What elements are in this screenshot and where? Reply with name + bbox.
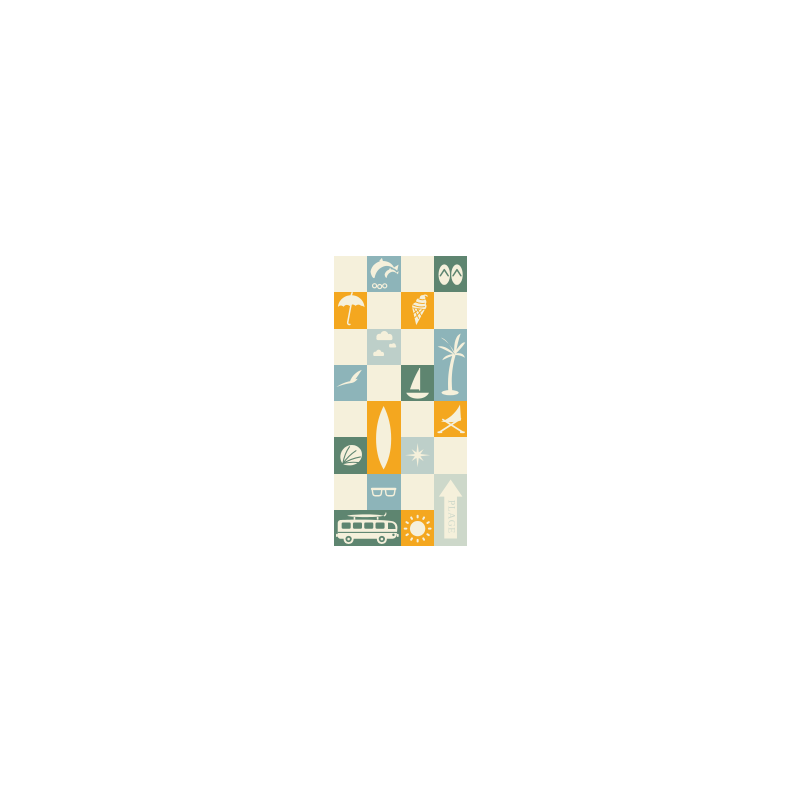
tile-palm <box>434 329 467 402</box>
starburst-icon <box>401 437 434 473</box>
beach-umbrella-icon <box>334 292 367 328</box>
tile-umbrella <box>334 292 367 328</box>
tile-empty <box>367 292 400 328</box>
tile-empty <box>367 365 400 401</box>
tile-empty <box>334 256 367 292</box>
tile-seagull <box>334 365 367 401</box>
sunglasses-icon <box>367 474 400 510</box>
tile-empty <box>334 474 367 510</box>
tile-flipflops <box>434 256 467 292</box>
tile-empty <box>401 256 434 292</box>
deckchair-icon <box>434 401 467 437</box>
shell-icon <box>334 437 367 473</box>
tile-empty <box>401 329 434 365</box>
flipflops-icon <box>434 256 467 292</box>
tile-shell <box>334 437 367 473</box>
tile-clouds <box>367 329 400 365</box>
camper-van-icon <box>334 510 401 546</box>
dolphins-icon <box>367 256 400 292</box>
tile-empty <box>401 401 434 437</box>
sun-icon <box>401 510 434 546</box>
tile-sun <box>401 510 434 546</box>
tile-empty <box>334 329 367 365</box>
surfboard-icon <box>367 401 400 474</box>
tile-surfboard <box>367 401 400 474</box>
tile-empty <box>434 437 467 473</box>
tile-deckchair <box>434 401 467 437</box>
tile-empty <box>434 292 467 328</box>
clouds-icon <box>367 329 400 365</box>
canvas: { "page": { "background": "#ffffff" }, "… <box>0 0 800 800</box>
palm-tree-icon <box>434 329 467 402</box>
plage-arrow-sign-icon: PLAGE <box>434 474 467 547</box>
tile-sailboat <box>401 365 434 401</box>
tile-empty <box>334 401 367 437</box>
beach-towel-artwork: PLAGE <box>334 256 467 543</box>
tile-dolphins <box>367 256 400 292</box>
tile-van <box>334 510 401 546</box>
tile-starburst <box>401 437 434 473</box>
tile-empty <box>401 474 434 510</box>
tile-plage-sign: PLAGE <box>434 474 467 547</box>
tile-icecream <box>401 292 434 328</box>
icecream-icon <box>401 292 434 328</box>
seagull-icon <box>334 365 367 401</box>
plage-label: PLAGE <box>445 499 456 533</box>
tile-sunglasses <box>367 474 400 510</box>
sailboat-icon <box>401 365 434 401</box>
